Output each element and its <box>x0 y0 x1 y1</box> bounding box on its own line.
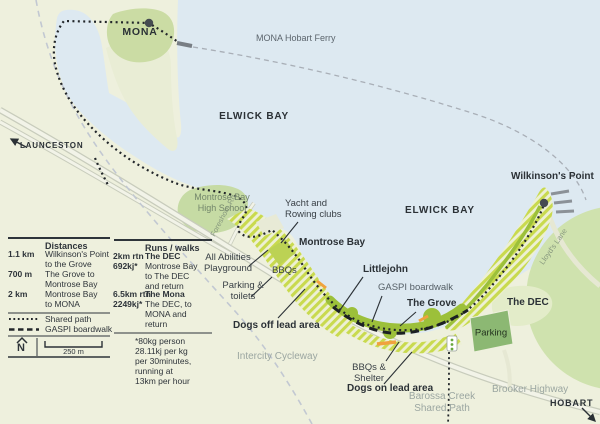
label-elwick-bay-north: ELWICK BAY <box>219 111 289 123</box>
point-jetty-2 <box>554 201 572 203</box>
label-dogs-off-lead: Dogs off lead area <box>233 320 320 332</box>
label-barossa-creek: Barossa Creek Shared Path <box>409 391 475 415</box>
scale-label: 250 m <box>45 348 102 357</box>
label-littlejohn: Littlejohn <box>363 264 408 276</box>
label-playground: All Abilities Playground <box>204 252 252 274</box>
label-the-grove: The Grove <box>407 298 456 310</box>
label-elwick-bay-east: ELWICK BAY <box>405 205 475 217</box>
legend-gaspi-label: GASPI boardwalk <box>45 324 112 334</box>
legend-distance-label: The Grove to Montrose Bay <box>45 269 97 289</box>
label-bbq-shelter: BBQs & Shelter <box>352 362 386 384</box>
facility-icon <box>447 336 457 351</box>
legend-run-name: The DEC <box>145 251 180 261</box>
legend-distance-value: 700 m <box>8 269 32 279</box>
legend-footnote: *80kg person 28.11kj per kg per 30minute… <box>135 336 191 386</box>
label-the-dec: The DEC <box>507 297 549 309</box>
label-mona: MONA <box>122 26 157 38</box>
label-parking-toilets: Parking & toilets <box>222 280 263 302</box>
label-yacht-rowing: Yacht and Rowing clubs <box>285 198 342 220</box>
label-montrose-bay: Montrose Bay <box>299 237 365 249</box>
legend-run-name: The Mona <box>145 289 185 299</box>
label-launceston: LAUNCESTON <box>20 141 83 150</box>
label-hobart: HOBART <box>550 398 593 409</box>
label-gaspi-boardwalk: GASPI boardwalk <box>378 282 453 293</box>
north-indicator: N <box>17 342 25 355</box>
label-mona-hobart-ferry: MONA Hobart Ferry <box>256 33 336 44</box>
legend-distance-value: 1.1 km <box>8 249 34 259</box>
legend-shared-path-label: Shared path <box>45 314 91 324</box>
label-bbqs: BBQs <box>272 265 297 276</box>
legend-run-desc: Montrose Bay to The DEC and return <box>145 261 197 291</box>
inlet-water <box>55 10 115 129</box>
legend-distance-label: Montrose Bay to MONA <box>45 289 97 309</box>
point-ferry-dot <box>540 199 548 207</box>
label-intercity-cycleway: Intercity Cycleway <box>237 351 318 363</box>
montrose-bay-map: MONA MONA Hobart Ferry ELWICK BAY ELWICK… <box>0 0 600 424</box>
legend-distance-value: 2 km <box>8 289 27 299</box>
label-wilkinsons-point: Wilkinson's Point <box>511 171 594 183</box>
legend-distance-label: Wilkinson's Point to the Grove <box>45 249 109 269</box>
legend-run-value: 2km rtn 692kj* <box>113 251 144 271</box>
label-parking: Parking <box>475 327 507 338</box>
label-brooker-highway: Brooker Highway <box>492 384 568 396</box>
legend-run-desc: The DEC, to MONA and return <box>145 299 192 329</box>
point-jetty-3 <box>556 211 574 212</box>
bridge-marker-2 <box>377 342 396 344</box>
